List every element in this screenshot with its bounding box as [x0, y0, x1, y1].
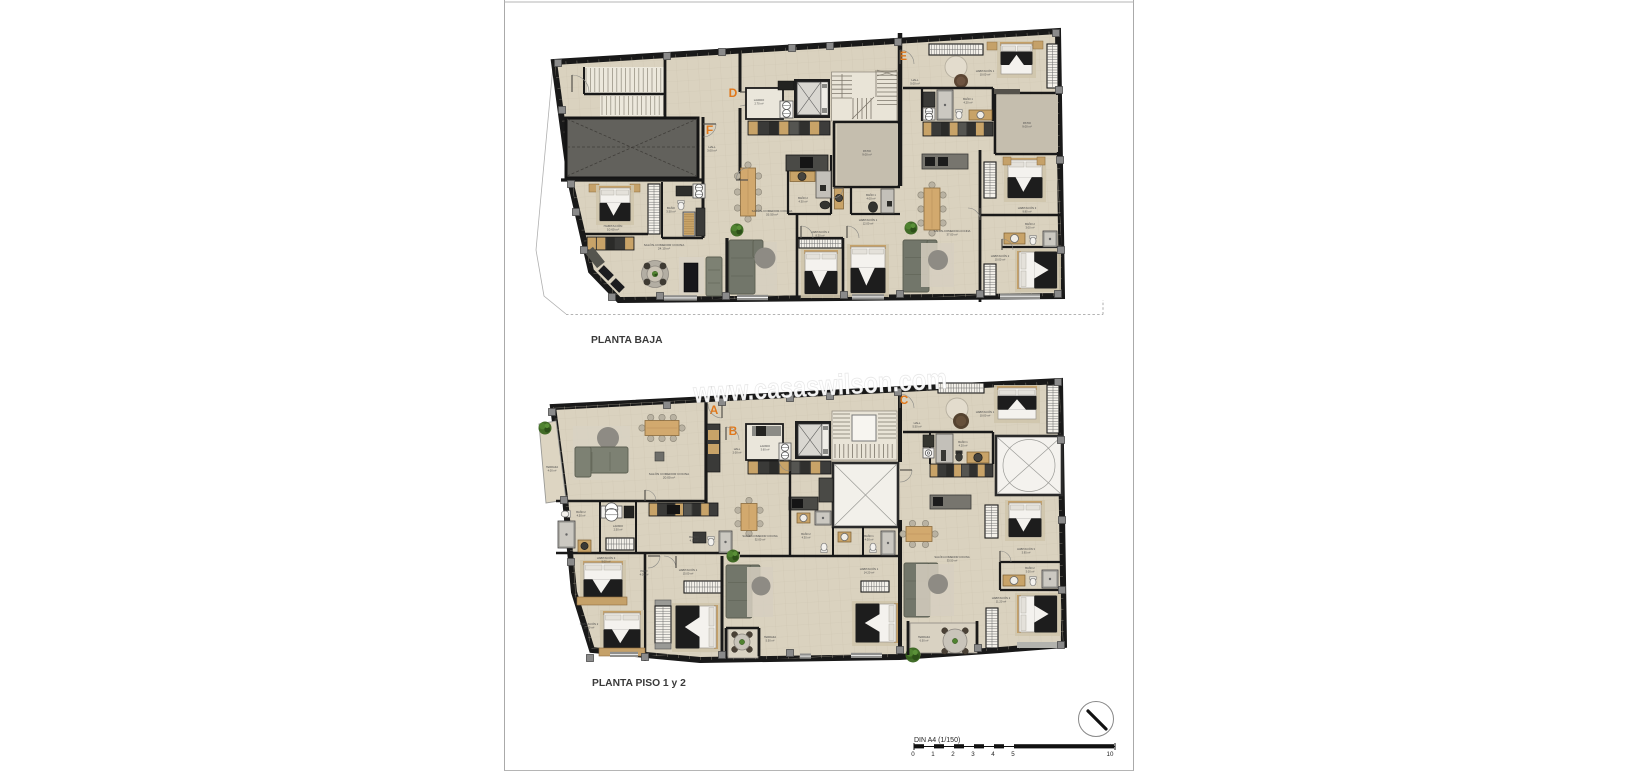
svg-text:D: D [729, 86, 738, 100]
svg-text:20.00 m²: 20.00 m² [663, 476, 675, 480]
svg-text:LAVADO: LAVADO [760, 444, 770, 448]
svg-text:33.50 m²: 33.50 m² [947, 559, 958, 563]
svg-text:LAVADO: LAVADO [754, 98, 765, 102]
svg-text:F: F [706, 123, 713, 137]
svg-text:5.50 m²: 5.50 m² [912, 425, 921, 429]
svg-text:2.70 m²: 2.70 m² [754, 102, 763, 106]
svg-text:2.50 m²: 2.50 m² [614, 528, 623, 532]
svg-text:3.95 m²: 3.95 m² [1022, 551, 1031, 555]
svg-text:2: 2 [951, 751, 955, 758]
svg-text:9.00 m²: 9.00 m² [862, 153, 872, 157]
svg-text:1: 1 [931, 751, 935, 758]
svg-text:DIN A4 (1/150): DIN A4 (1/150) [914, 737, 960, 744]
svg-text:2.00 m²: 2.00 m² [733, 451, 742, 455]
svg-text:3.00 m²: 3.00 m² [1026, 570, 1035, 574]
svg-text:4.00 m²: 4.00 m² [640, 573, 649, 577]
svg-text:10.00 m²: 10.00 m² [980, 414, 991, 418]
svg-text:4.20 m²: 4.20 m² [959, 444, 968, 448]
svg-text:6.50 m²: 6.50 m² [920, 639, 929, 643]
svg-text:9.00 m²: 9.00 m² [1022, 125, 1032, 129]
svg-text:37.00 m²: 37.00 m² [946, 233, 957, 237]
svg-text:9.00 m²: 9.00 m² [601, 560, 610, 564]
svg-text:15.00 m²: 15.00 m² [683, 572, 694, 576]
svg-text:TERRAZA: TERRAZA [546, 465, 558, 469]
svg-text:10.60 m²: 10.60 m² [607, 228, 619, 232]
svg-text:3.60 m²: 3.60 m² [761, 448, 770, 452]
svg-text:LAVADO: LAVADO [613, 524, 623, 528]
svg-text:HALL: HALL [914, 421, 921, 425]
svg-text:4.30 m²: 4.30 m² [798, 200, 807, 204]
svg-text:10.50 m²: 10.50 m² [584, 626, 595, 630]
svg-text:3.00 m²: 3.00 m² [1025, 226, 1034, 230]
svg-text:PLANTA PISO 1 y 2: PLANTA PISO 1 y 2 [592, 678, 686, 689]
svg-text:5.50 m²: 5.50 m² [766, 639, 775, 643]
svg-text:33.50 m²: 33.50 m² [766, 213, 778, 217]
svg-text:14.20 m²: 14.20 m² [864, 571, 875, 575]
svg-text:3.00 m²: 3.00 m² [707, 149, 717, 153]
svg-text:4: 4 [991, 751, 995, 758]
svg-text:24.10 m²: 24.10 m² [658, 247, 670, 251]
svg-text:TERRAZA: TERRAZA [918, 635, 930, 639]
svg-text:3: 3 [971, 751, 975, 758]
svg-text:HALL: HALL [734, 447, 741, 451]
svg-text:4.00 m²: 4.00 m² [866, 197, 875, 201]
svg-text:TERRAZA: TERRAZA [764, 635, 776, 639]
svg-text:10.00 m²: 10.00 m² [980, 73, 991, 77]
svg-text:4.50 m²: 4.50 m² [577, 514, 586, 518]
svg-text:10: 10 [1107, 751, 1114, 758]
svg-text:4.50 m²: 4.50 m² [690, 539, 699, 543]
svg-text:5: 5 [1011, 751, 1015, 758]
svg-text:12.00 m²: 12.00 m² [863, 222, 874, 226]
svg-text:4.00 m²: 4.00 m² [865, 538, 874, 542]
svg-text:32.00 m²: 32.00 m² [755, 538, 766, 542]
svg-text:8.30 m²: 8.30 m² [815, 234, 824, 238]
svg-text:3.50 m²: 3.50 m² [666, 210, 676, 214]
svg-text:0: 0 [911, 751, 915, 758]
svg-text:9.80 m²: 9.80 m² [1022, 210, 1031, 214]
svg-text:10.00 m²: 10.00 m² [995, 258, 1006, 262]
svg-text:11.20 m²: 11.20 m² [996, 600, 1007, 604]
svg-text:B: B [729, 424, 738, 438]
svg-text:5.00 m²: 5.00 m² [910, 82, 920, 86]
svg-text:4.20 m²: 4.20 m² [963, 101, 972, 105]
svg-text:4.30 m²: 4.30 m² [802, 536, 811, 540]
svg-text:PLANTA BAJA: PLANTA BAJA [591, 335, 663, 346]
svg-text:PASO: PASO [640, 569, 647, 573]
svg-text:4.00 m²: 4.00 m² [548, 469, 557, 473]
